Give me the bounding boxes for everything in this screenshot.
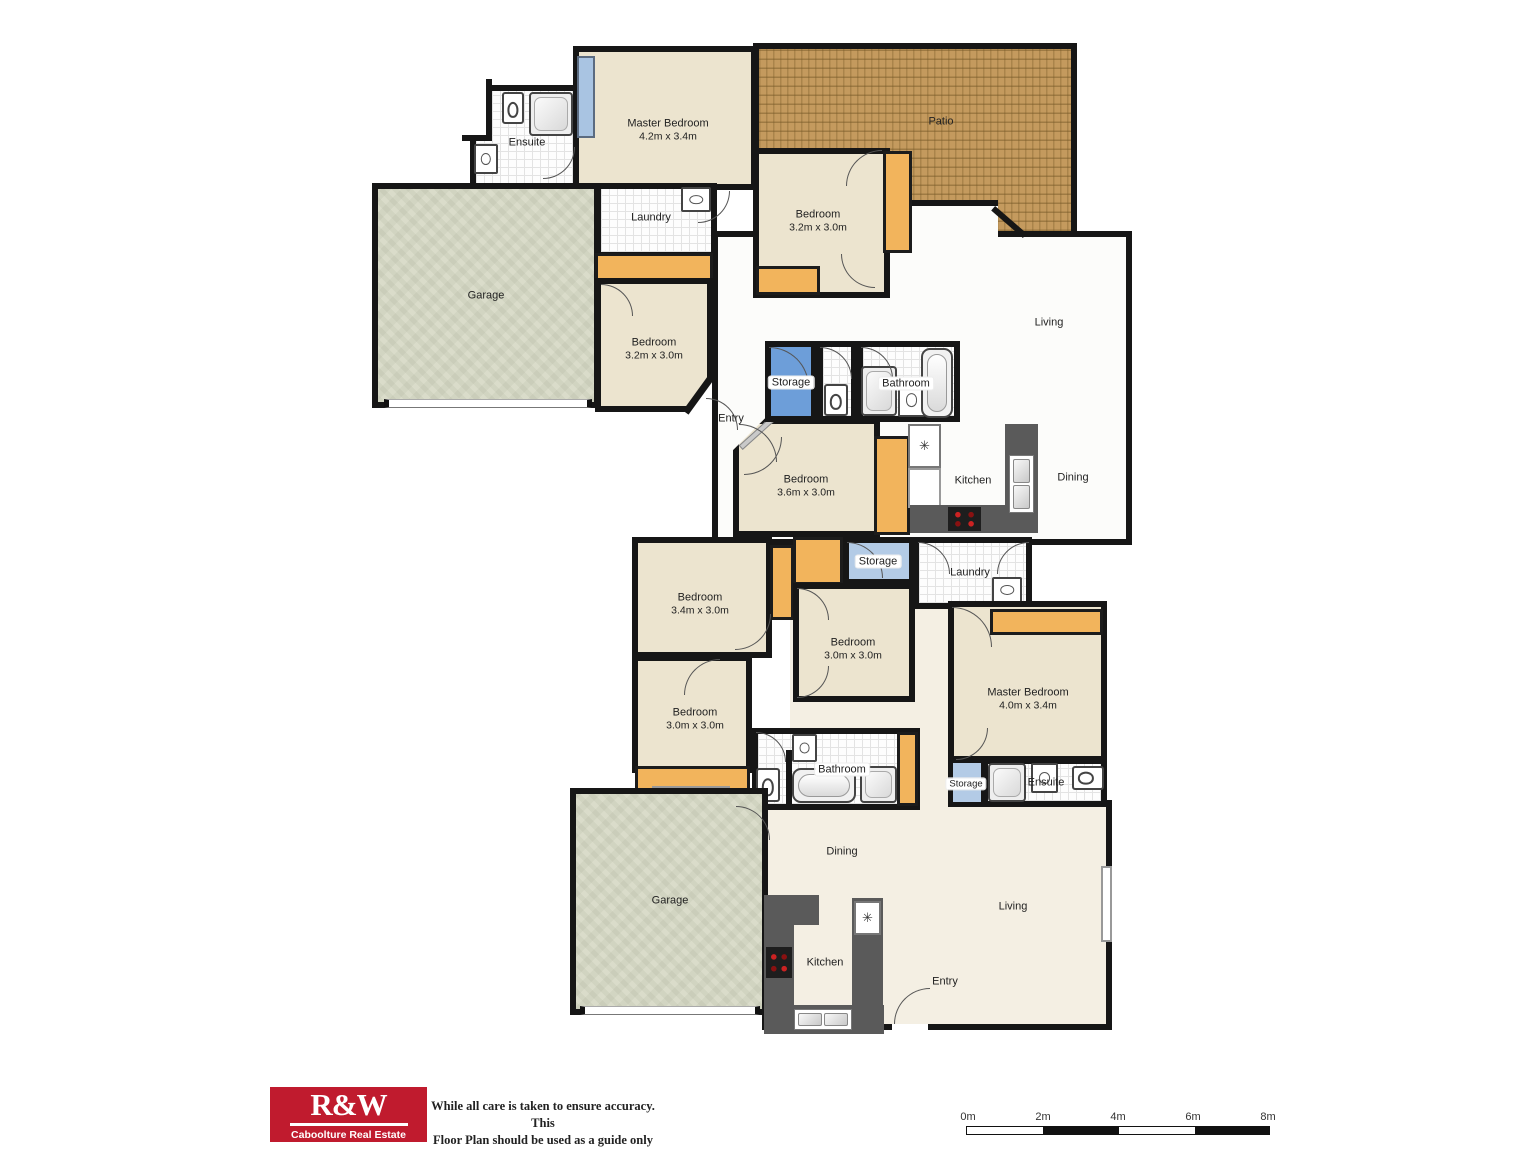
label-laundry-unit1: Laundry	[631, 212, 671, 225]
window-icon	[1101, 866, 1112, 942]
label-ensuite-unit2: Ensuite	[1028, 777, 1065, 790]
label-garage-unit2: Garage	[652, 895, 689, 908]
scale-label-6m: 6m	[1185, 1111, 1200, 1123]
entry-opening	[892, 1024, 928, 1030]
wardrobe	[595, 253, 713, 282]
scale-segment	[1119, 1127, 1195, 1134]
wardrobe	[793, 537, 843, 585]
label-ensuite-unit1: Ensuite	[509, 137, 546, 150]
fridge-glyph: ✳	[862, 910, 873, 926]
scale-label-0m: 0m	[960, 1111, 975, 1123]
label-entry-unit1: Entry	[718, 413, 744, 426]
toilet-icon	[1072, 766, 1104, 790]
sink-icon	[474, 144, 498, 174]
fridge-icon: ✳	[854, 901, 881, 935]
toilet-icon	[824, 384, 848, 416]
label-entry-unit2: Entry	[932, 976, 958, 989]
label-dining-unit1: Dining	[1057, 472, 1088, 485]
disclaimer-line-1: While all care is taken to ensure accura…	[420, 1098, 666, 1132]
wardrobe	[883, 151, 912, 253]
label-storage-unit1: Storage	[769, 377, 814, 390]
wardrobe	[990, 609, 1103, 635]
scale-segment	[1195, 1127, 1269, 1134]
wardrobe	[874, 436, 910, 535]
label-kitchen-unit1: Kitchen	[955, 475, 992, 488]
label-laundry-unit2: Laundry	[950, 567, 990, 580]
shower-icon	[529, 92, 573, 136]
label-master-bedroom-unit2: Master Bedroom4.0m x 3.4m	[987, 686, 1068, 711]
disclaimer-line-2: Floor Plan should be used as a guide onl…	[420, 1132, 666, 1149]
stove-icon	[766, 947, 792, 978]
scale-label-8m: 8m	[1260, 1111, 1275, 1123]
label-living-unit2: Living	[999, 901, 1028, 914]
scale-segment	[1043, 1127, 1119, 1134]
label-bathroom-unit1: Bathroom	[879, 378, 933, 391]
wardrobe	[756, 266, 820, 295]
label-kitchen-unit2: Kitchen	[807, 957, 844, 970]
scale-segment	[967, 1127, 1043, 1134]
toilet-icon	[502, 92, 524, 124]
floor-plan: ✳ ✳	[0, 0, 1534, 1150]
label-dining-unit2: Dining	[826, 846, 857, 859]
kitchen-cabinet	[908, 468, 941, 508]
laundry-tub-icon	[992, 577, 1022, 603]
label-storage-top-unit2: Storage	[856, 556, 901, 569]
label-patio: Patio	[928, 116, 953, 129]
label-garage-unit1: Garage	[468, 290, 505, 303]
ensuite-step	[462, 79, 492, 141]
kitchen-counter	[764, 895, 819, 925]
logo-subtitle: Caboolture Real Estate	[291, 1129, 406, 1141]
label-bedroom-left-unit1: Bedroom3.2m x 3.0m	[625, 336, 683, 361]
label-living-unit1: Living	[1035, 317, 1064, 330]
patio-notch-patch	[908, 200, 998, 239]
scale-bar	[966, 1126, 1270, 1135]
scale-label-4m: 4m	[1110, 1111, 1125, 1123]
stove-icon	[948, 507, 981, 531]
label-bedroom-mid-unit1: Bedroom3.6m x 3.0m	[777, 473, 835, 498]
logo-underline	[290, 1123, 408, 1126]
label-bedroom-mid-unit2: Bedroom3.0m x 3.0m	[824, 636, 882, 661]
fridge-glyph: ✳	[919, 438, 930, 454]
label-master-bedroom-unit1: Master Bedroom4.2m x 3.4m	[627, 117, 708, 142]
label-bedroom-top-unit2: Bedroom3.4m x 3.0m	[671, 591, 729, 616]
window-icon	[577, 56, 595, 138]
garage-door-icon	[384, 399, 592, 408]
label-bedroom-left-unit2: Bedroom3.0m x 3.0m	[666, 706, 724, 731]
disclaimer-text: While all care is taken to ensure accura…	[420, 1098, 666, 1149]
garage-door-icon	[580, 1006, 760, 1015]
scale-label-2m: 2m	[1035, 1111, 1050, 1123]
shower-icon	[988, 763, 1026, 802]
fridge-icon: ✳	[908, 424, 941, 468]
agency-logo: R&W Caboolture Real Estate	[270, 1087, 427, 1142]
linen-cupboard	[897, 732, 918, 806]
door-arc	[698, 191, 730, 223]
label-storage-small-unit2: Storage	[946, 778, 985, 789]
label-bathroom-unit2: Bathroom	[815, 764, 869, 777]
kitchen-sink-icon	[794, 1009, 852, 1030]
sink-icon	[792, 734, 817, 762]
label-bedroom-right-unit1: Bedroom3.2m x 3.0m	[789, 208, 847, 233]
logo-title: R&W	[310, 1089, 386, 1120]
wardrobe	[770, 545, 794, 620]
kitchen-sink-icon	[1009, 455, 1034, 513]
